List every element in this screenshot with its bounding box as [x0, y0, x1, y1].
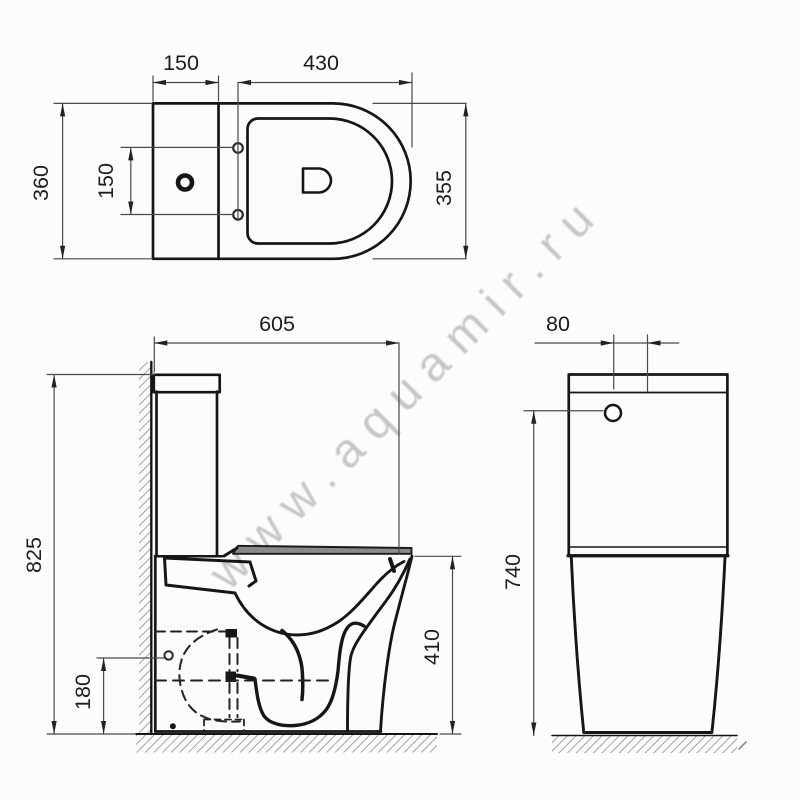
svg-text:150: 150 [94, 163, 118, 199]
svg-text:150: 150 [163, 51, 199, 75]
svg-text:80: 80 [546, 312, 570, 336]
svg-text:180: 180 [71, 674, 95, 710]
svg-text:410: 410 [420, 629, 444, 665]
svg-text:740: 740 [501, 554, 525, 590]
svg-text:825: 825 [22, 537, 46, 573]
svg-text:360: 360 [29, 165, 53, 201]
svg-text:355: 355 [432, 170, 456, 206]
svg-text:430: 430 [303, 51, 339, 75]
svg-text:605: 605 [259, 312, 295, 336]
